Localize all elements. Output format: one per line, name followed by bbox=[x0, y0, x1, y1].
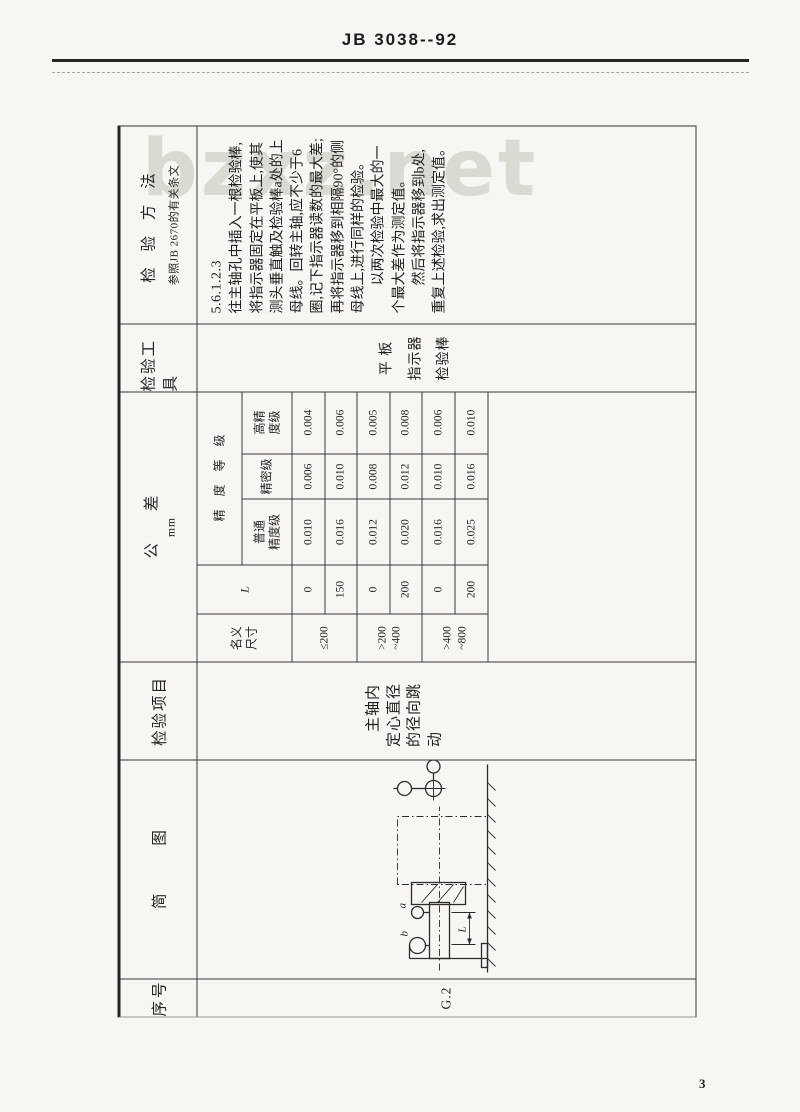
inspection-table: 序号 简 图 检验项目 公 差 mm 检验工具 检 验 方 法 参照JB 267… bbox=[118, 126, 697, 1018]
grade-group-header: 精 度 等 级 bbox=[198, 392, 243, 565]
size-value: >200 ~400 bbox=[358, 614, 423, 662]
header-rule-bottom bbox=[52, 72, 749, 73]
method-paragraph: 然后将指示器移到b处,重复上述检验,求出测定值。 bbox=[410, 136, 451, 314]
tolerance-value: 0.008 bbox=[390, 392, 423, 454]
label-b: b bbox=[399, 931, 411, 937]
tolerance-value: 0.006 bbox=[325, 392, 358, 454]
size-value: ≤200 bbox=[293, 614, 358, 662]
method-paragraph: 往主轴孔中插入一根检验棒,将指示器固定在平板上,使其测头垂直触及检验棒a处的上母… bbox=[228, 136, 370, 314]
tolerance-value: 0.016 bbox=[423, 499, 456, 565]
tolerance-unit: mm bbox=[166, 517, 178, 537]
tools-cell: 平 板 指示器 检验棒 bbox=[198, 324, 696, 392]
header-method: 检 验 方 法 参照JB 2670的有关条文 bbox=[121, 127, 198, 324]
end-view bbox=[394, 760, 446, 801]
item-text: 主轴内定心直径的径向跳动 bbox=[364, 675, 447, 747]
size-value: >400 ~800 bbox=[423, 614, 488, 662]
header-rule-top bbox=[52, 59, 749, 62]
method-reference: 参照JB 2670的有关条文 bbox=[165, 165, 181, 285]
L-value: 0 bbox=[293, 565, 326, 614]
tolerance-value: 0.006 bbox=[423, 392, 456, 454]
tolerance-value: 0.025 bbox=[455, 499, 488, 565]
tolerance-value: 0.016 bbox=[455, 454, 488, 499]
method-label: 检 验 方 法 bbox=[136, 167, 158, 283]
L-value: 0 bbox=[358, 565, 391, 614]
L-value: 200 bbox=[455, 565, 488, 614]
standard-code: JB 3038--92 bbox=[0, 30, 800, 50]
L-value: 0 bbox=[423, 565, 456, 614]
grade-precision-header: 精密级 bbox=[243, 454, 293, 499]
method-paragraph: 以两次检验中最大的一个最大差作为测定值。 bbox=[370, 136, 411, 314]
sketch-cell: L a b bbox=[198, 760, 696, 979]
tolerance-value: 0.016 bbox=[325, 499, 358, 565]
label-a: a bbox=[397, 903, 409, 909]
end-view-indicator-top bbox=[398, 782, 412, 796]
end-view-indicator-side bbox=[427, 760, 440, 773]
tolerance-value: 0.010 bbox=[423, 454, 456, 499]
tolerance-value: 0.020 bbox=[390, 499, 423, 565]
header-tolerance: 公 差 mm bbox=[121, 392, 198, 662]
tolerance-value: 0.010 bbox=[325, 454, 358, 499]
L-value: 150 bbox=[325, 565, 358, 614]
header-tools: 检验工具 bbox=[121, 324, 198, 392]
method-clause-number: 5.6.1.2.3 bbox=[208, 136, 228, 314]
headstock-outline bbox=[398, 817, 488, 885]
tolerance-value: 0.006 bbox=[293, 454, 326, 499]
tolerance-value: 0.008 bbox=[358, 454, 391, 499]
tolerance-value: 0.010 bbox=[293, 499, 326, 565]
grade-high-header: 高精 度级 bbox=[243, 392, 293, 454]
tolerance-label: 公 差 bbox=[140, 482, 162, 573]
grade-ordinary-header: 普通 精度级 bbox=[243, 499, 293, 565]
tolerance-value: 0.005 bbox=[358, 392, 391, 454]
distance-L-header: L bbox=[198, 565, 293, 614]
header-item: 检验项目 bbox=[121, 662, 198, 760]
L-value: 200 bbox=[390, 565, 423, 614]
tolerance-value: 0.010 bbox=[455, 392, 488, 454]
tolerance-value: 0.004 bbox=[293, 392, 326, 454]
dial-indicator-a bbox=[412, 907, 424, 919]
method-cell: 5.6.1.2.3 往主轴孔中插入一根检验棒,将指示器固定在平板上,使其测头垂直… bbox=[198, 127, 696, 324]
dial-indicator-b bbox=[410, 938, 426, 954]
spindle-diagram: L a b bbox=[198, 760, 696, 979]
tolerance-subtable: 名义 尺寸 L 精 度 等 级 普通 精度级 精密级 高精 度级 ≤200 0 … bbox=[198, 393, 489, 662]
nominal-size-header: 名义 尺寸 bbox=[198, 614, 293, 662]
tolerance-cell: 名义 尺寸 L 精 度 等 级 普通 精度级 精密级 高精 度级 ≤200 0 … bbox=[198, 392, 696, 662]
item-cell: 主轴内定心直径的径向跳动 bbox=[198, 662, 696, 760]
header-sketch: 简 图 bbox=[121, 760, 198, 979]
label-L: L bbox=[457, 926, 469, 933]
tolerance-value: 0.012 bbox=[358, 499, 391, 565]
tolerance-value: 0.012 bbox=[390, 454, 423, 499]
serial-value: G.2 bbox=[198, 979, 696, 1017]
header-serial: 序号 bbox=[121, 979, 198, 1017]
indicator-stand-foot bbox=[482, 944, 488, 968]
hatching bbox=[488, 783, 496, 967]
page-number: 3 bbox=[699, 1076, 706, 1092]
